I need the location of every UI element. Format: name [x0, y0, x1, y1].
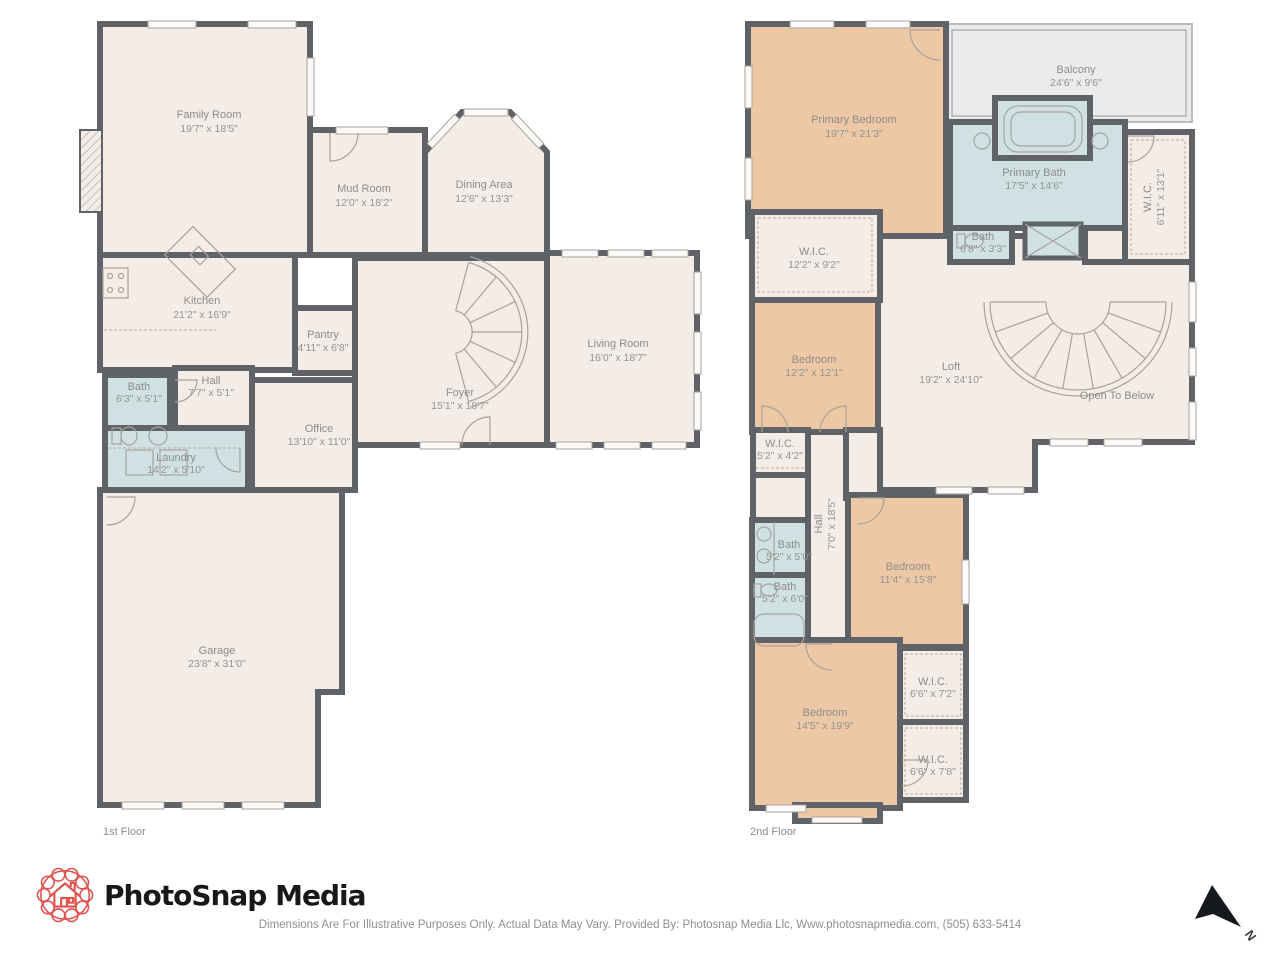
room-bedroom-1 [752, 300, 878, 432]
window-marker [122, 802, 164, 809]
room-loft-open-to-below [878, 236, 1192, 490]
room-label: Office [305, 423, 334, 435]
window-marker [1050, 439, 1088, 446]
room-dims: 4'11" x 6'8" [298, 342, 349, 354]
window-marker [604, 442, 640, 449]
window-marker [307, 58, 314, 116]
window-marker [242, 802, 284, 809]
room-dims: 19'7" x 18'5" [180, 123, 238, 135]
floorplan-page: Family Room 19'7" x 18'5" Mud Room 12'0"… [0, 0, 1280, 960]
room-label: Bedroom [792, 354, 837, 366]
window-marker [812, 817, 862, 823]
window-marker [988, 487, 1024, 494]
room-label: Bedroom [886, 561, 931, 573]
room-dims: 7'7" x 5'1" [188, 387, 234, 399]
floor1-plan: Family Room 19'7" x 18'5" Mud Room 12'0"… [80, 21, 701, 838]
room-dims: 6'3" x 5'1" [116, 393, 162, 405]
window-marker [1189, 282, 1196, 322]
room-office [252, 380, 355, 490]
room-label: Hall [813, 515, 825, 534]
room-dims: 14'2" x 5'10" [147, 464, 205, 476]
window-marker [420, 442, 460, 449]
window-marker [652, 442, 686, 449]
floor2-caption: 2nd Floor [750, 826, 797, 838]
brand-name: PhotoSnap Media [104, 879, 366, 912]
window-marker [464, 109, 508, 116]
room-dims: 7'0" x 18'5" [826, 498, 838, 550]
room-label: Open To Below [1080, 390, 1154, 402]
room-label: W.I.C. [765, 438, 795, 450]
room-label: Bath [972, 231, 995, 243]
window-marker [1189, 402, 1196, 440]
fireplace [80, 130, 102, 212]
window-marker [562, 250, 598, 257]
room-label: Hall [202, 375, 221, 387]
room-foyer [355, 258, 547, 445]
room-label: Kitchen [184, 295, 221, 307]
room-dims: 17'5" x 14'6" [1005, 180, 1063, 192]
room-label: W.I.C. [918, 754, 948, 766]
window-marker [652, 250, 688, 257]
room-dims: 24'6" x 9'6" [1050, 77, 1102, 89]
hall-closet [753, 475, 808, 520]
photosnap-logo-icon [36, 866, 94, 924]
room-dims: 14'5" x 19'9" [796, 720, 854, 732]
window-marker [694, 332, 701, 374]
window-marker [694, 392, 701, 430]
room-label: Mud Room [337, 183, 391, 195]
window-marker [790, 21, 834, 28]
room-label: Bath [774, 581, 797, 593]
room-dims: 6'6" x 7'2" [910, 688, 956, 700]
window-marker [148, 21, 196, 28]
room-label: Dining Area [456, 179, 514, 191]
room-dims: 11'4" x 15'8" [880, 574, 937, 586]
room-dims: 12'6" x 13'3" [455, 193, 513, 205]
room-dims: 5'2" x 6'0" [762, 593, 808, 605]
room-dims: 21'2" x 16'9" [173, 309, 231, 321]
room-label: Living Room [587, 338, 648, 350]
room-dims: 23'8" x 31'0" [188, 658, 246, 670]
window-marker [248, 21, 296, 28]
window-marker [962, 560, 969, 604]
room-label: W.I.C. [918, 676, 948, 688]
room-label: Bath [128, 381, 151, 393]
floor2-plan: Primary Bedroom 19'7" x 21'3" Balcony 24… [745, 21, 1196, 838]
floor1-caption: 1st Floor [103, 826, 146, 838]
window-marker [556, 442, 592, 449]
room-dims: 12'2" x 9'2" [788, 259, 840, 271]
hall-landing [846, 430, 880, 498]
floor1-rooms [80, 24, 697, 805]
room-dims: 6'6" x 7'8" [910, 766, 956, 778]
house-icon [51, 883, 80, 907]
room-label: Loft [942, 361, 960, 373]
room-dims: 15'1" x 18'7" [431, 400, 489, 412]
floorplan-canvas: Family Room 19'7" x 18'5" Mud Room 12'0"… [0, 0, 1280, 960]
room-label: Bedroom [803, 707, 848, 719]
room-label: Primary Bath [1002, 167, 1066, 179]
room-label: Foyer [446, 387, 474, 399]
room-family-room [100, 24, 310, 255]
room-dims: 16'0" x 18'7" [589, 352, 647, 364]
window-marker [766, 805, 806, 812]
window-marker [745, 158, 752, 200]
window-marker [866, 21, 910, 28]
floor2-rooms [748, 24, 1192, 821]
room-dims: 5'2" x 5'0" [766, 551, 812, 563]
room-dims: 19'2" x 24'10" [919, 374, 983, 386]
footer-disclaimer: Dimensions Are For Illustrative Purposes… [0, 919, 1280, 931]
room-label: Family Room [177, 109, 242, 121]
room-label: Bath [778, 539, 801, 551]
room-dims: 5'2" x 4'2" [757, 450, 803, 462]
window-marker [1189, 348, 1196, 376]
room-dims: 19'7" x 21'3" [825, 128, 883, 140]
room-label: Garage [199, 645, 236, 657]
room-label: Pantry [307, 329, 339, 341]
room-label: Primary Bedroom [811, 114, 897, 126]
window-marker [745, 66, 752, 108]
room-dims: 12'0" x 18'2" [335, 197, 393, 209]
brand-block: PhotoSnap Media [36, 866, 366, 924]
window-marker [936, 487, 972, 494]
room-label: W.I.C. [799, 246, 829, 258]
window-marker [336, 127, 388, 134]
room-label: Laundry [156, 452, 196, 464]
room-dims: 6'8" x 3'3" [960, 243, 1006, 255]
window-marker [694, 272, 701, 314]
closet [1085, 228, 1125, 262]
room-dims: 12'2" x 12'1" [785, 367, 843, 379]
room-dims: 6'11" x 13'1" [1155, 168, 1167, 225]
window-marker [1104, 439, 1142, 446]
window-marker [182, 802, 224, 809]
window-marker [608, 250, 644, 257]
room-label: W.I.C. [1142, 182, 1154, 212]
room-dims: 13'10" x 11'0" [288, 436, 351, 448]
north-arrow: N [1195, 885, 1260, 944]
room-label: Balcony [1056, 64, 1096, 76]
